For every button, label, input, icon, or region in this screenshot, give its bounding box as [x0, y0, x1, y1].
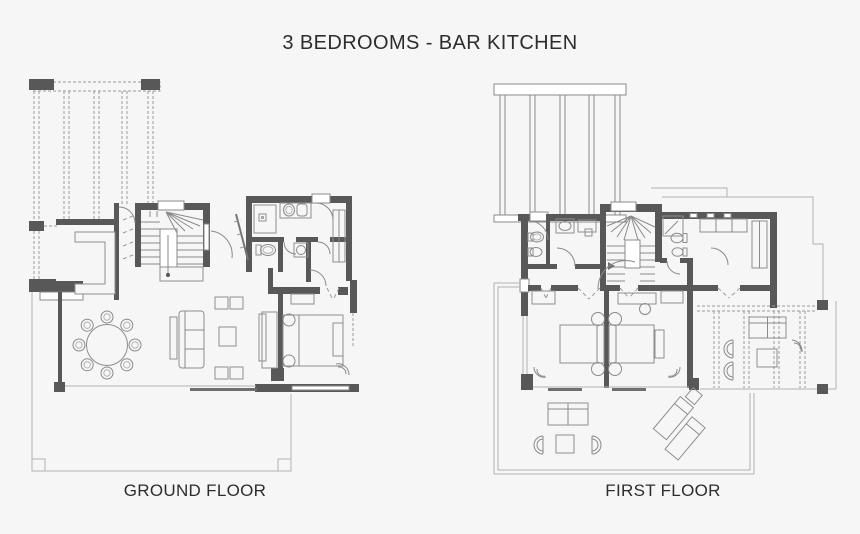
first-bathroom-right: [663, 216, 687, 274]
pergola-solid: [494, 84, 626, 222]
ground-floor-label: GROUND FLOOR: [124, 481, 266, 501]
sun-loungers: [648, 385, 720, 460]
ground-floor-plan: [0, 70, 435, 510]
first-floor-label: FIRST FLOOR: [605, 481, 720, 501]
first-bedroom-mid: [609, 291, 684, 377]
covered-terrace: [697, 300, 828, 394]
staircase-first: [607, 216, 655, 281]
dining-table: [73, 311, 141, 379]
first-floor-plan: [435, 70, 860, 510]
bar-kitchen-counter: [75, 232, 115, 294]
sheet-title: 3 BEDROOMS - BAR KITCHEN: [282, 32, 577, 55]
ground-terrace: [32, 292, 291, 471]
living-room-furniture: [170, 297, 266, 379]
first-bedroom-left: [532, 291, 605, 377]
floor-plan-sheet: 3 BEDROOMS - BAR KITCHEN: [0, 0, 860, 534]
ground-bedroom: [262, 294, 349, 375]
